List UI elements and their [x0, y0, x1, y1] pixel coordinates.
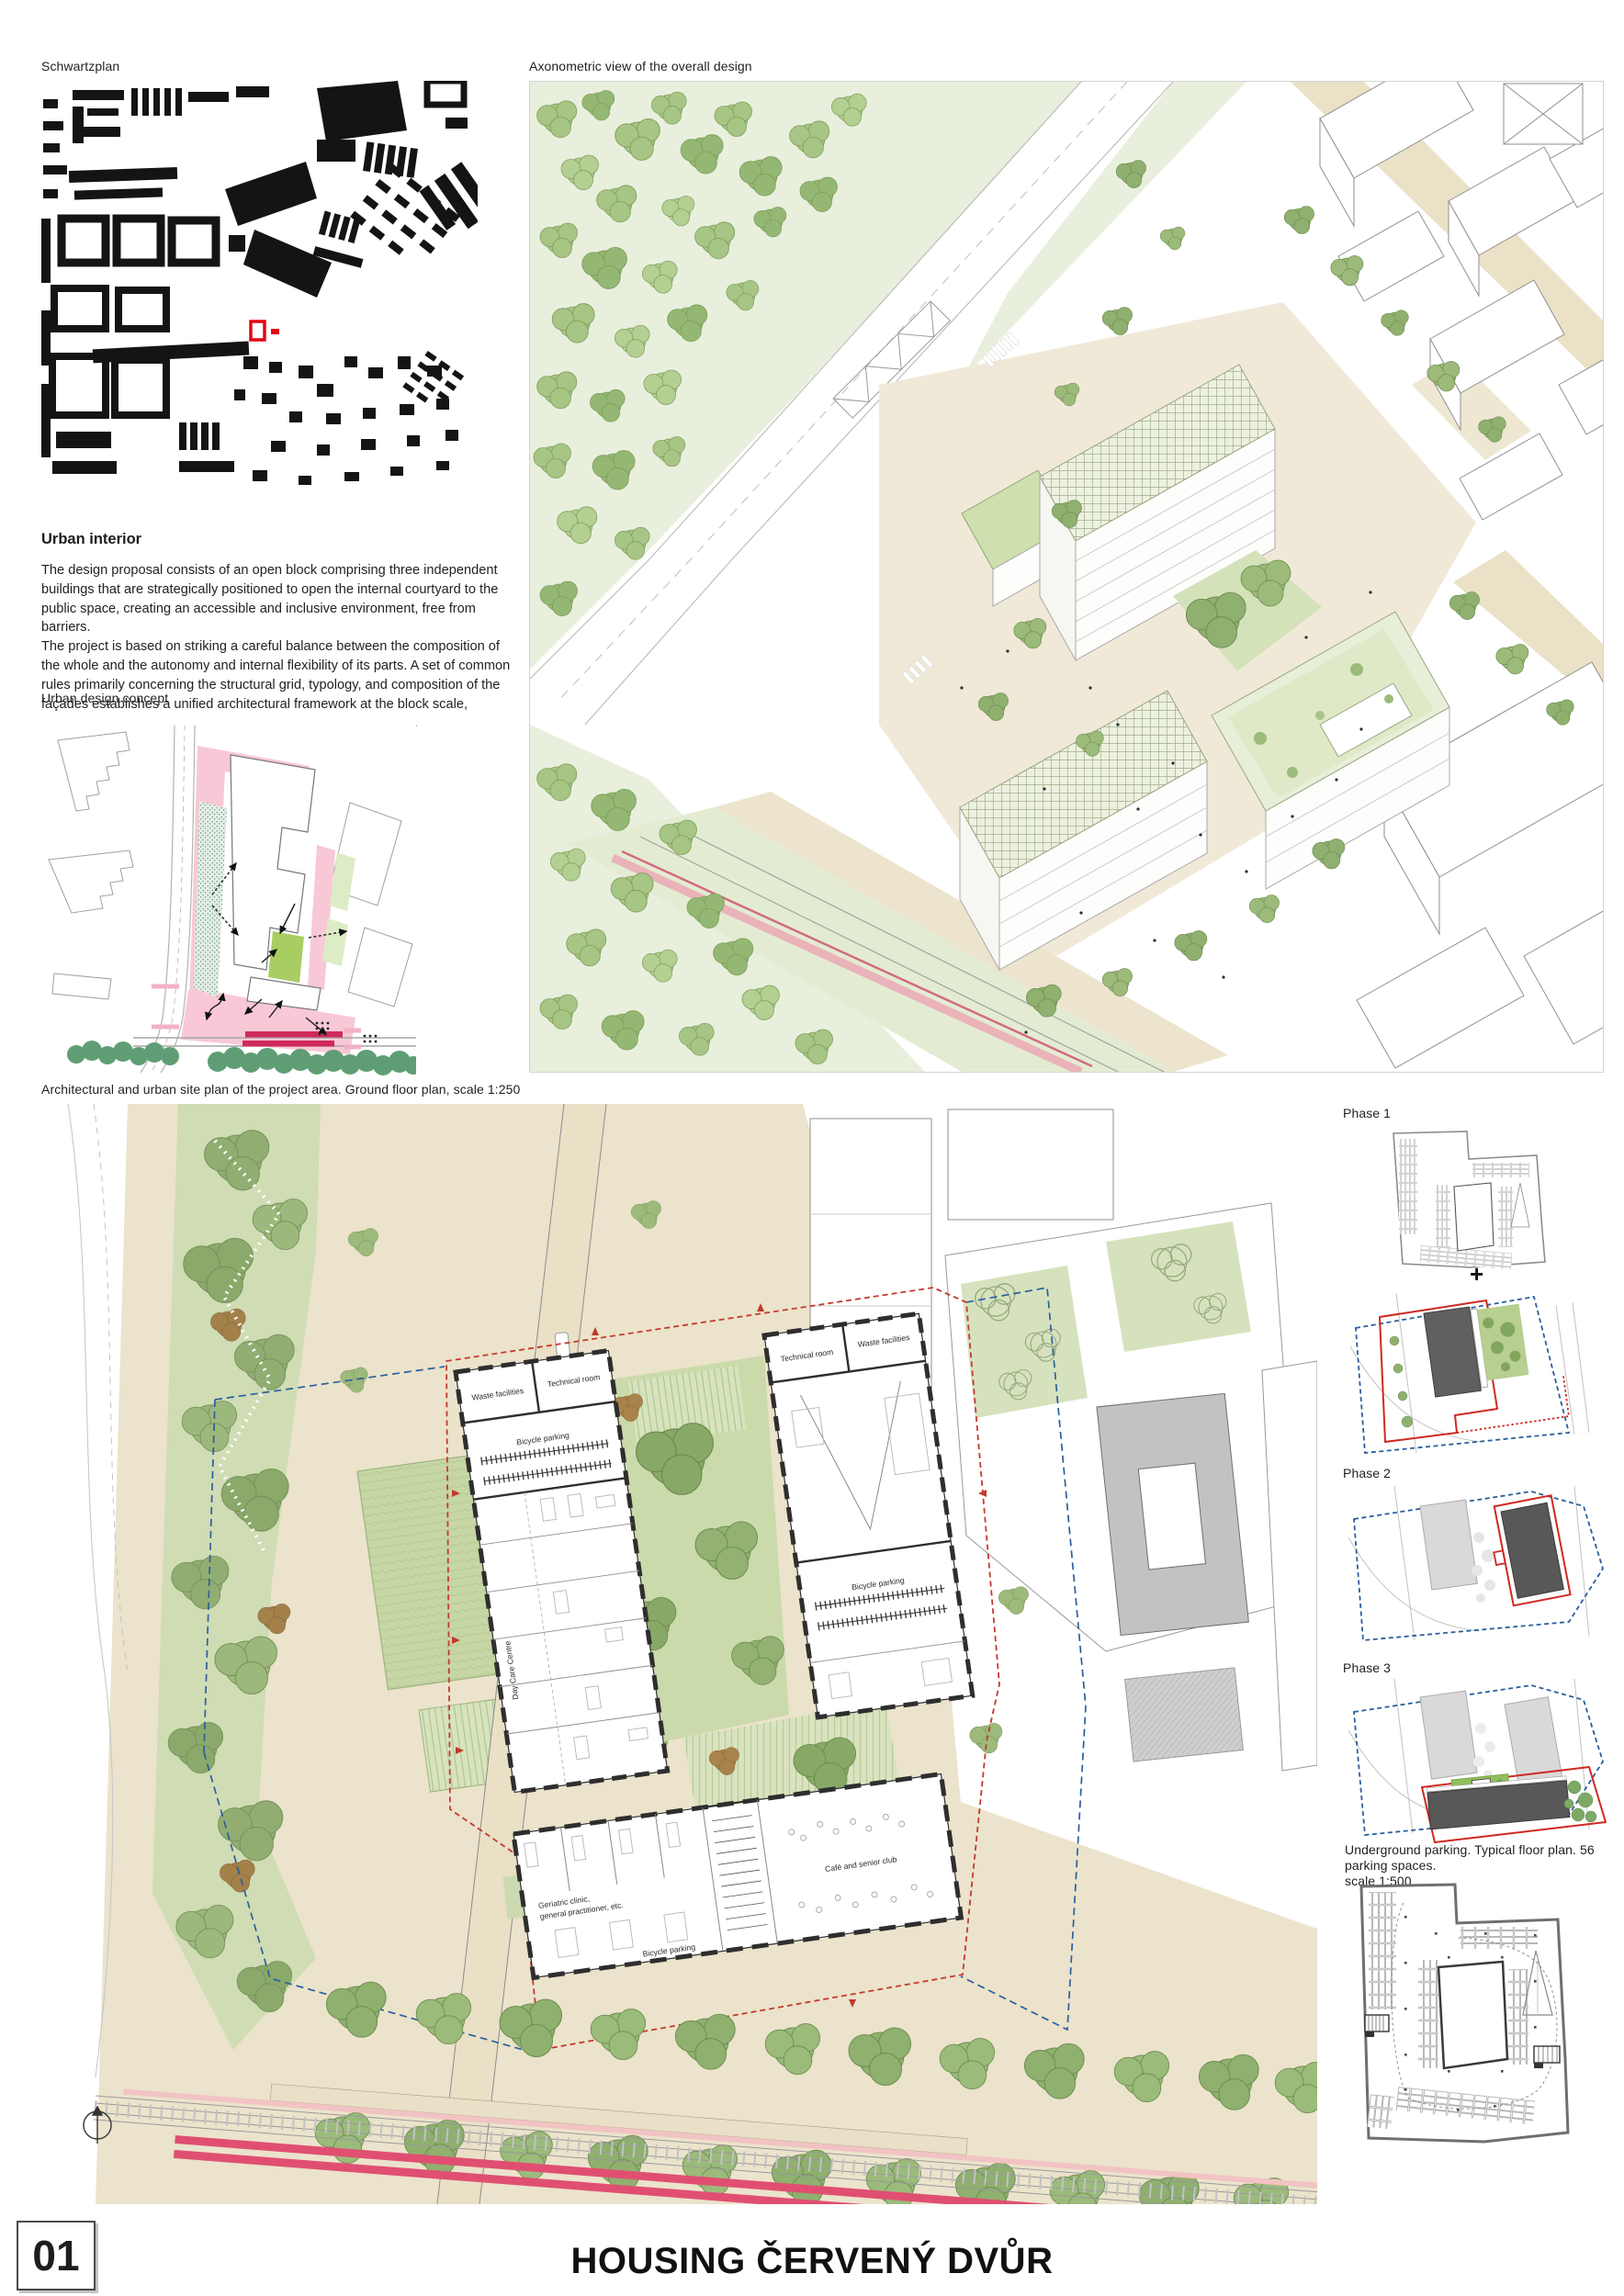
schwartzplan-map	[41, 81, 478, 510]
phase3-label: Phase 3	[1343, 1660, 1391, 1675]
urban-interior-heading: Urban interior	[41, 531, 521, 548]
parking-caption-line-1: Underground parking. Typical floor plan.…	[1345, 1842, 1620, 1874]
site-plan: Waste facilities Technical room Bicycle …	[40, 1104, 1317, 2204]
phase2-site-diagram	[1343, 1482, 1614, 1643]
phase3-site-diagram	[1343, 1677, 1614, 1844]
phase2-label: Phase 2	[1343, 1466, 1391, 1480]
project-title: HOUSING ČERVENÝ DVŮR	[0, 2241, 1624, 2282]
axonometric-label: Axonometric view of the overall design	[529, 59, 752, 73]
urban-design-concept-diagram	[41, 715, 416, 1076]
urban-design-concept-label: Urban design concept	[41, 691, 168, 705]
site-plan-label: Architectural and urban site plan of the…	[41, 1082, 520, 1097]
concept-courtyard-green	[268, 931, 304, 983]
phase1-label: Phase 1	[1343, 1106, 1391, 1120]
axonometric-view	[529, 81, 1604, 1073]
urban-interior-paragraph-1: The design proposal consists of an open …	[41, 561, 521, 637]
phase1-site-diagram	[1343, 1288, 1609, 1458]
phase1-plus-sign: +	[1470, 1260, 1483, 1289]
schwartzplan-label: Schwartzplan	[41, 59, 119, 73]
underground-parking-plan	[1347, 1879, 1584, 2147]
phase1-parking-diagram	[1382, 1128, 1557, 1275]
